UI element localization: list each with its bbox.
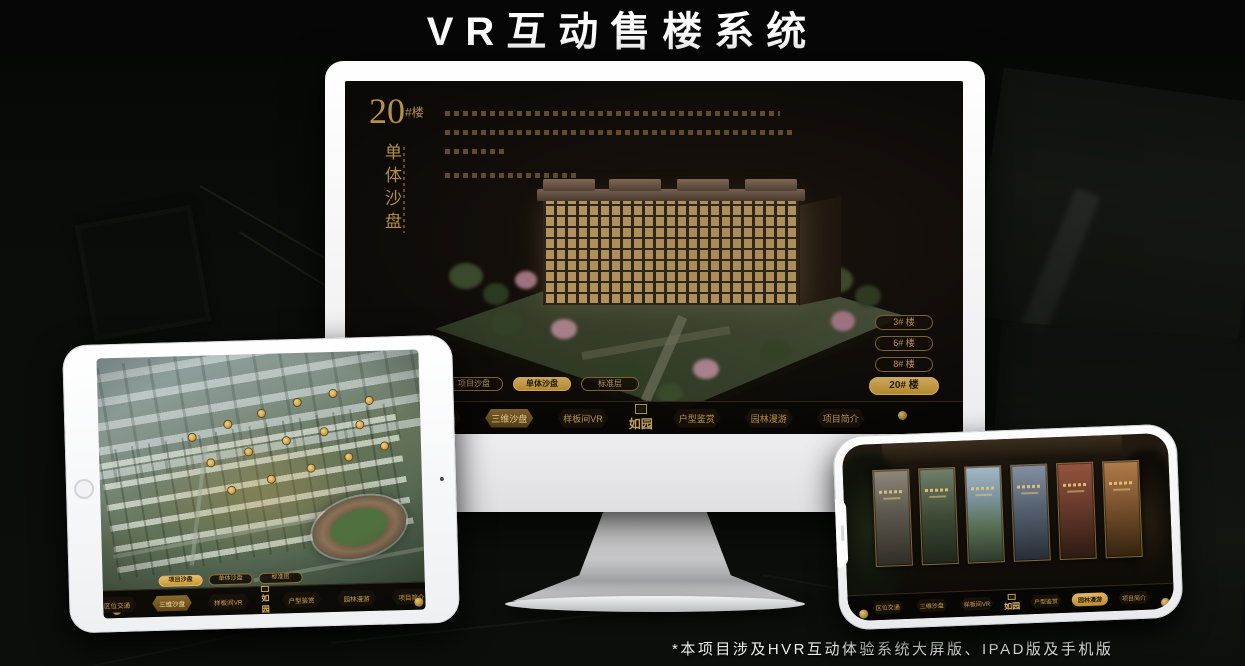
panorama-card[interactable] (1102, 460, 1143, 558)
page-title: VR互动售楼系统 (427, 0, 819, 57)
seal-icon (1008, 593, 1016, 599)
logo-text: 如园 (1004, 600, 1020, 612)
nav-item-model-vr[interactable]: 样板间VR (958, 597, 997, 611)
background-plaque (75, 205, 212, 342)
tablet-screen: 项目沙盘 单体沙盘 标准层 区位交通 三维沙盘 样板间VR 如园 户型鉴赏 园林… (96, 350, 425, 619)
nav-item-location[interactable]: 区位交通 (870, 600, 906, 614)
panorama-card[interactable] (964, 465, 1005, 563)
monitor-stand (497, 509, 813, 601)
camera-dot (440, 477, 444, 481)
title-bar: VR互动售楼系统 (0, 0, 1245, 56)
nav-item-project-info[interactable]: 项目简介 (1116, 591, 1152, 605)
nav-item-floorplans[interactable]: 户型鉴赏 (278, 591, 324, 608)
panorama-card[interactable] (1056, 462, 1097, 560)
nav-item-floorplans[interactable]: 户型鉴赏 (1028, 594, 1064, 608)
panorama-cards (872, 460, 1143, 567)
monitor-stand-base (505, 596, 805, 612)
nav-item-3d-sandtable[interactable]: 三维沙盘 (149, 594, 195, 611)
background-river-card (969, 67, 1245, 352)
panorama-card[interactable] (1010, 463, 1051, 561)
home-button[interactable] (74, 479, 95, 500)
nav-logo: 如园 (1004, 593, 1021, 612)
nav-logo: 如园 (261, 586, 270, 615)
nav-item-garden-tour[interactable]: 园林漫游 (333, 589, 379, 606)
tab-project-sandtable[interactable]: 项目沙盘 (159, 575, 203, 587)
nav-item-model-vr[interactable]: 样板间VR (204, 593, 253, 610)
seal-icon (261, 586, 269, 592)
panorama-card[interactable] (872, 469, 913, 567)
tablet-device: 项目沙盘 单体沙盘 标准层 区位交通 三维沙盘 样板间VR 如园 户型鉴赏 园林… (62, 335, 460, 634)
phone-device: 区位交通 三维沙盘 样板间VR 如园 户型鉴赏 园林漫游 项目简介 (832, 423, 1183, 630)
footnote-text: *本项目涉及HVR互动体验系统大屏版、IPAD版及手机版 (672, 638, 1113, 659)
phone-screen: 区位交通 三维沙盘 样板间VR 如园 户型鉴赏 园林漫游 项目简介 (842, 433, 1175, 621)
nav-item-garden-tour[interactable]: 园林漫游 (1072, 592, 1108, 606)
nav-item-location[interactable]: 区位交通 (96, 596, 140, 613)
panorama-card[interactable] (918, 467, 959, 565)
logo-text: 如园 (261, 593, 270, 615)
tab-single-sandtable[interactable]: 单体沙盘 (209, 573, 253, 585)
nav-item-3d-sandtable[interactable]: 三维沙盘 (914, 598, 950, 612)
tab-standard-floor[interactable]: 标准层 (258, 572, 302, 584)
stage: VR互动售楼系统 20#楼 单体沙盘 (0, 0, 1245, 666)
